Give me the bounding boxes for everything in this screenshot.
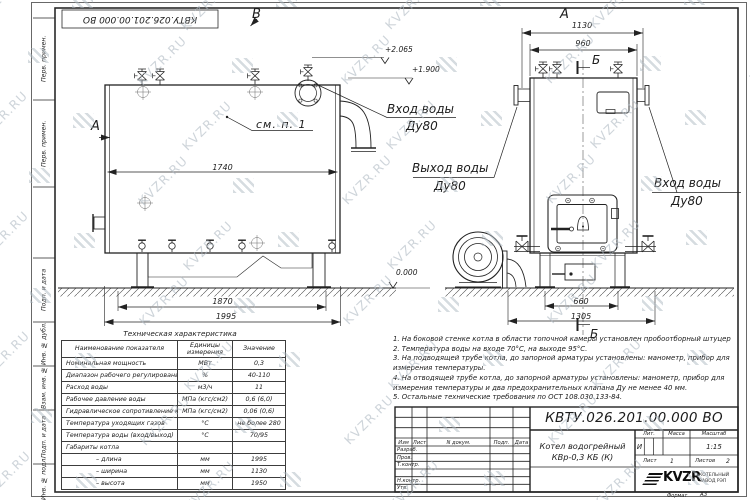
tb-header-data: Дата bbox=[513, 440, 530, 446]
label-water-inlet-left: Вход воды bbox=[387, 102, 454, 116]
note-line-2: 2. Температура воды на входе 70°С, на вы… bbox=[393, 345, 731, 355]
table-row: Температура уходящих газов°Сне более 280 bbox=[62, 418, 286, 430]
margin-label-podp-data-1: Подп. и дата bbox=[36, 258, 52, 322]
dim-1305: 1305 bbox=[559, 312, 603, 321]
row-name: – ширина bbox=[62, 466, 178, 478]
dim-1870: 1870 bbox=[200, 297, 245, 306]
row-units: мм bbox=[178, 454, 233, 466]
dim-1740: 1740 bbox=[200, 163, 245, 172]
label-water-inlet-left-dn: Ду80 bbox=[406, 119, 438, 133]
label-water-outlet: Выход воды bbox=[412, 161, 488, 175]
row-units: °С bbox=[178, 430, 233, 442]
kvzr-logo-text: KVZR bbox=[663, 470, 701, 485]
label-water-inlet-right-dn: Ду80 bbox=[671, 194, 703, 208]
margin-label-inv-podl: Инв. № подл. bbox=[36, 464, 52, 492]
company-name-line1: КОТЕЛЬНЫЙ bbox=[699, 473, 729, 478]
row-name: Рабочее давление воды bbox=[62, 394, 178, 406]
row-value: 11 bbox=[233, 382, 286, 394]
tb-sheet-label: Лист bbox=[643, 458, 657, 464]
row-name: – высота bbox=[62, 478, 178, 490]
tb-sheets-value: 2 bbox=[726, 458, 730, 465]
margin-label-perv-primen-2: Перв. примен. bbox=[36, 100, 52, 187]
note-line-3b: измерения температуры. bbox=[393, 364, 731, 374]
row-name: Температура уходящих газов bbox=[62, 418, 178, 430]
dim-960: 960 bbox=[565, 39, 601, 48]
tb-header-ndokum: N докум. bbox=[427, 440, 490, 446]
table-row: Гидравлическое сопротивление котлаМПа (к… bbox=[62, 406, 286, 418]
row-value: 70/95 bbox=[233, 430, 286, 442]
company-name-line2: ЗАВОД РЭП bbox=[699, 479, 726, 484]
row-units: мм bbox=[178, 478, 233, 490]
note-line-4b: измерения температуры и два предохраните… bbox=[393, 384, 731, 394]
margin-label-perv-primen-1: Перв. примен. bbox=[36, 18, 52, 100]
format-value: А3 bbox=[700, 492, 707, 498]
title-block-designation: КВТУ.026.201.00.000 ВО bbox=[530, 407, 738, 430]
col-header-value: Значение bbox=[233, 341, 286, 358]
elevation-mark-1900: +1.900 bbox=[412, 65, 440, 74]
dim-1130: 1130 bbox=[562, 21, 602, 30]
view-label-a-arrow: А bbox=[91, 119, 100, 134]
tech-table-title: Техническая характеристика bbox=[75, 329, 285, 338]
row-name: Номинальная мощность bbox=[62, 358, 178, 370]
dim-1995: 1995 bbox=[202, 312, 250, 321]
table-header-row: Наименование показателя Единицы измерени… bbox=[62, 341, 286, 358]
tb-lit-value: И bbox=[635, 443, 644, 451]
note-line-5: 5. Остальные технические требования по О… bbox=[393, 393, 731, 403]
row-units: % bbox=[178, 370, 233, 382]
row-value: 0,3 bbox=[233, 358, 286, 370]
tb-row-nkontr: Н.контр. bbox=[397, 478, 420, 484]
elevation-mark-2065: +2.065 bbox=[385, 45, 413, 54]
row-name: Расход воды bbox=[62, 382, 178, 394]
row-value bbox=[233, 442, 286, 454]
table-row: – высотамм1950 bbox=[62, 478, 286, 490]
tb-row-utv: Утв. bbox=[397, 485, 408, 491]
note-line-3: 3. На подводящей трубе котла, до запорно… bbox=[393, 354, 731, 364]
tb-scale-value: 1:15 bbox=[690, 443, 738, 451]
tech-characteristics-table: Наименование показателя Единицы измерени… bbox=[61, 340, 286, 490]
row-name: Гидравлическое сопротивление котла bbox=[62, 406, 178, 418]
row-units: МВт bbox=[178, 358, 233, 370]
tb-row-prov: Пров. bbox=[397, 455, 412, 461]
row-value: 1950 bbox=[233, 478, 286, 490]
top-rotated-designation: КВТУ.026.201.00.000 ВО bbox=[62, 10, 218, 28]
tb-doc-name-line2: КВр-0,3 КБ (К) bbox=[532, 452, 633, 462]
callout-see-note: см. п. 1 bbox=[256, 118, 307, 131]
col-header-units: Единицы измерения bbox=[178, 341, 233, 358]
table-row: Диапазон рабочего регулирования%40-110 bbox=[62, 370, 286, 382]
col-header-name: Наименование показателя bbox=[62, 341, 178, 358]
row-units: МПа (кгс/см2) bbox=[178, 406, 233, 418]
table-row: Расход водым3/ч11 bbox=[62, 382, 286, 394]
row-units: МПа (кгс/см2) bbox=[178, 394, 233, 406]
elevation-mark-0000: 0.000 bbox=[396, 268, 417, 277]
note-line-4: 4. На отводящей трубе котла, до запорной… bbox=[393, 374, 731, 384]
tb-header-podp: Подп. bbox=[490, 440, 513, 446]
table-row: – длинамм1995 bbox=[62, 454, 286, 466]
tb-header-list: Лист bbox=[412, 440, 427, 446]
table-row: Температура воды (вход/выход)°С70/95 bbox=[62, 430, 286, 442]
table-row: Рабочее давление водыМПа (кгс/см2)0,6 (6… bbox=[62, 394, 286, 406]
dim-660: 660 bbox=[562, 297, 600, 306]
tb-row-razrab: Разраб. bbox=[397, 447, 417, 453]
row-value: 0,06 (0,6) bbox=[233, 406, 286, 418]
tb-sheet-value: 1 bbox=[670, 458, 674, 465]
label-water-outlet-dn: Ду80 bbox=[434, 179, 466, 193]
note-line-1: 1. На боковой стенке котла в области топ… bbox=[393, 335, 731, 345]
view-label-a-top: А bbox=[560, 7, 569, 22]
section-label-b-top: Б bbox=[592, 53, 600, 67]
tb-mass-header: Масса bbox=[663, 431, 690, 437]
table-row: Габариты котла bbox=[62, 442, 286, 454]
technical-notes: 1. На боковой стенке котла в области топ… bbox=[393, 335, 731, 403]
tb-lit-header: Лит. bbox=[635, 431, 663, 437]
margin-label-inv-dubl: Инв. № дубл. bbox=[36, 322, 52, 366]
row-name: Диапазон рабочего регулирования bbox=[62, 370, 178, 382]
row-units: мм bbox=[178, 466, 233, 478]
row-value: 1130 bbox=[233, 466, 286, 478]
drawing-sheet: КВТУ.026.201.00.000 ВО Перв. примен. Пер… bbox=[0, 0, 750, 500]
row-units: м3/ч bbox=[178, 382, 233, 394]
margin-label-vzam-inv: Взам. инв. № bbox=[36, 366, 52, 410]
row-value: 40-110 bbox=[233, 370, 286, 382]
format-word: Формат bbox=[667, 493, 687, 499]
row-units bbox=[178, 442, 233, 454]
row-name: Габариты котла bbox=[62, 442, 178, 454]
tb-header-izm: Изм bbox=[395, 440, 412, 446]
table-row: Номинальная мощностьМВт0,3 bbox=[62, 358, 286, 370]
row-value: 0,6 (6,0) bbox=[233, 394, 286, 406]
tb-sheets-label: Листов bbox=[695, 458, 715, 464]
label-water-inlet-right: Вход воды bbox=[654, 176, 721, 190]
tb-doc-name-line1: Котел водогрейный bbox=[532, 441, 633, 451]
tb-row-tkontr: Т.контр. bbox=[397, 462, 419, 468]
row-units: °С bbox=[178, 418, 233, 430]
row-value: 1995 bbox=[233, 454, 286, 466]
row-name: – длина bbox=[62, 454, 178, 466]
row-name: Температура воды (вход/выход) bbox=[62, 430, 178, 442]
view-label-v: В bbox=[252, 7, 261, 22]
tb-scale-header: Масштаб bbox=[690, 431, 738, 437]
table-row: – ширинамм1130 bbox=[62, 466, 286, 478]
row-value: не более 280 bbox=[233, 418, 286, 430]
